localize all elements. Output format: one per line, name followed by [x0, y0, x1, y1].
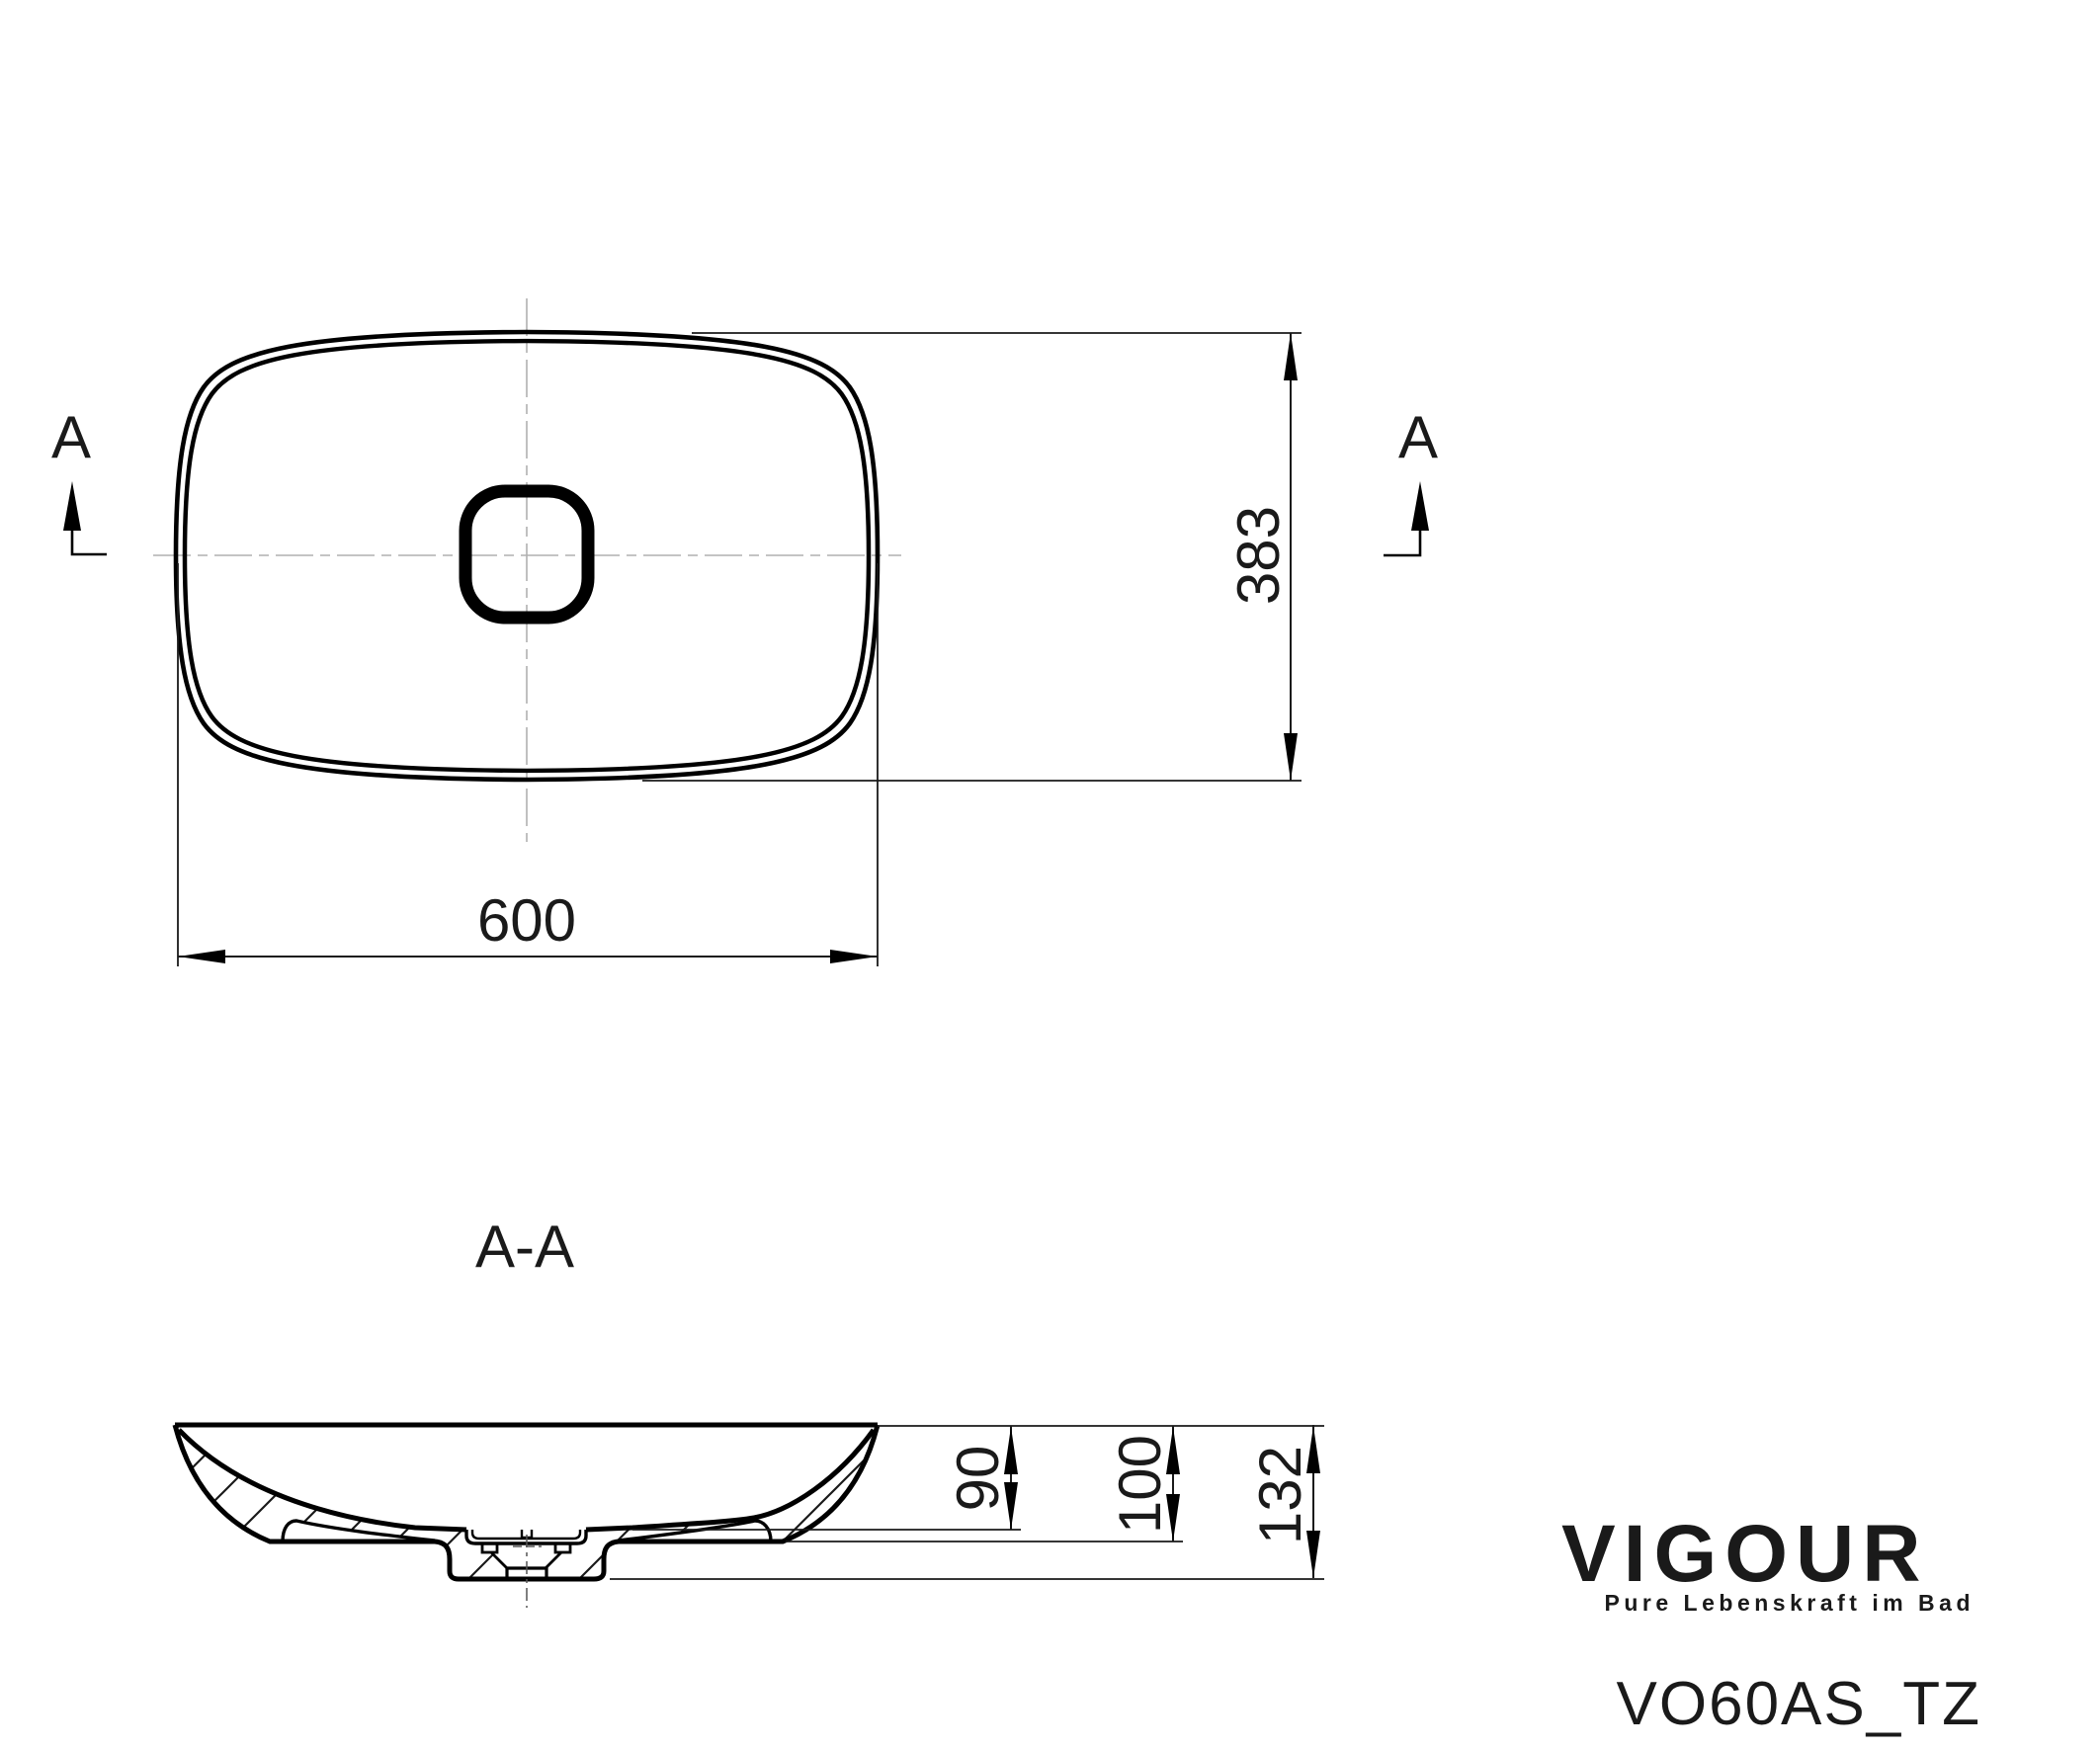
- logo-wordmark: VIGOUR: [1561, 1509, 1928, 1599]
- dim-90-value: 90: [945, 1446, 1011, 1512]
- branding-block: VIGOUR Pure Lebenskraft im Bad VO60AS_TZ: [1561, 1509, 1981, 1738]
- arrow-right-icon: [830, 950, 878, 963]
- section-cut-left: A: [51, 404, 107, 554]
- dim-100: 100: [1107, 1426, 1180, 1542]
- section-centerline: [513, 1535, 542, 1608]
- clip-right: [555, 1543, 570, 1552]
- section-cut-right: A: [1384, 404, 1438, 555]
- section-view: A-A: [175, 1213, 1324, 1608]
- plan-view: A A 383 600: [51, 298, 1438, 966]
- dim-600-value: 600: [477, 887, 576, 954]
- logo-tagline: Pure Lebenskraft im Bad: [1605, 1590, 1974, 1616]
- arrow-left-icon: [178, 950, 225, 963]
- dim-100-value: 100: [1107, 1435, 1173, 1534]
- section-arrow-left-icon: [63, 481, 81, 531]
- dim-132: 132: [1247, 1425, 1320, 1578]
- bowl-surface-right: [586, 1430, 874, 1530]
- dim-132-value: 132: [1247, 1446, 1313, 1544]
- section-dimensions: 90 100 132: [610, 1425, 1324, 1579]
- arrow-up-icon: [1284, 333, 1298, 380]
- dim-383-value: 383: [1225, 506, 1292, 605]
- clip-left: [482, 1543, 497, 1552]
- dim-90: 90: [945, 1426, 1018, 1530]
- product-code: VO60AS_TZ: [1617, 1670, 1981, 1738]
- section-arrow-right-icon: [1411, 481, 1429, 531]
- drawing-page: A A 383 600 A-A: [0, 0, 2100, 1750]
- section-label-right: A: [1398, 404, 1438, 470]
- technical-drawing: A A 383 600 A-A: [0, 0, 2100, 1750]
- section-title: A-A: [475, 1213, 574, 1280]
- dim-383: 383: [642, 333, 1302, 781]
- section-label-left: A: [51, 404, 91, 470]
- arrow-down-icon: [1284, 733, 1298, 781]
